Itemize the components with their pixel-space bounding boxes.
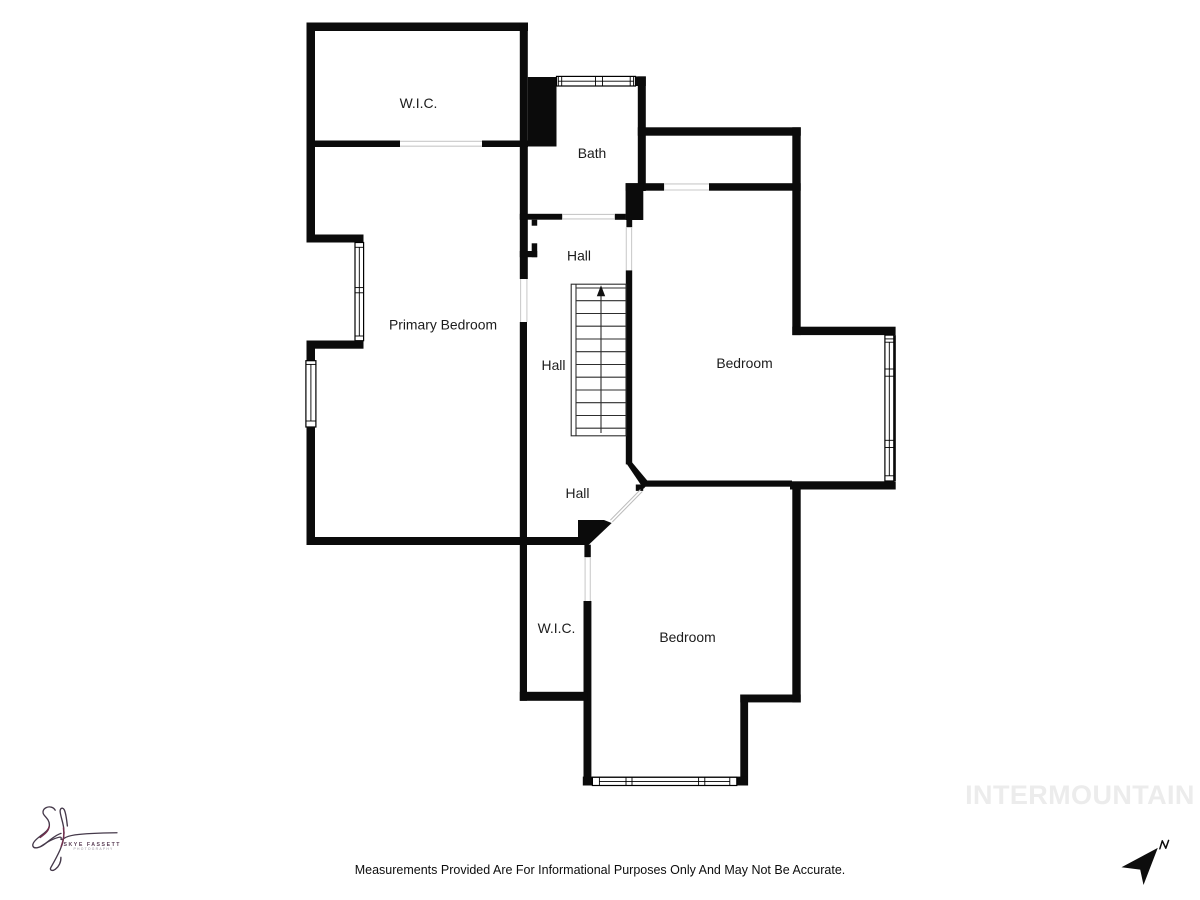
svg-text:PHOTOGRAPHY: PHOTOGRAPHY [74, 847, 114, 851]
svg-text:Bedroom: Bedroom [716, 355, 772, 371]
svg-text:Hall: Hall [542, 357, 566, 373]
svg-text:W.I.C.: W.I.C. [400, 95, 438, 111]
svg-text:Bath: Bath [578, 145, 607, 161]
svg-text:Bedroom: Bedroom [659, 629, 715, 645]
svg-text:Hall: Hall [566, 485, 590, 501]
svg-text:INTERMOUNTAIN: INTERMOUNTAIN [965, 780, 1195, 810]
svg-text:Hall: Hall [567, 248, 591, 264]
svg-text:Primary Bedroom: Primary Bedroom [389, 317, 497, 333]
svg-text:Measurements Provided Are For: Measurements Provided Are For Informatio… [355, 863, 846, 877]
svg-text:W.I.C.: W.I.C. [538, 620, 576, 636]
